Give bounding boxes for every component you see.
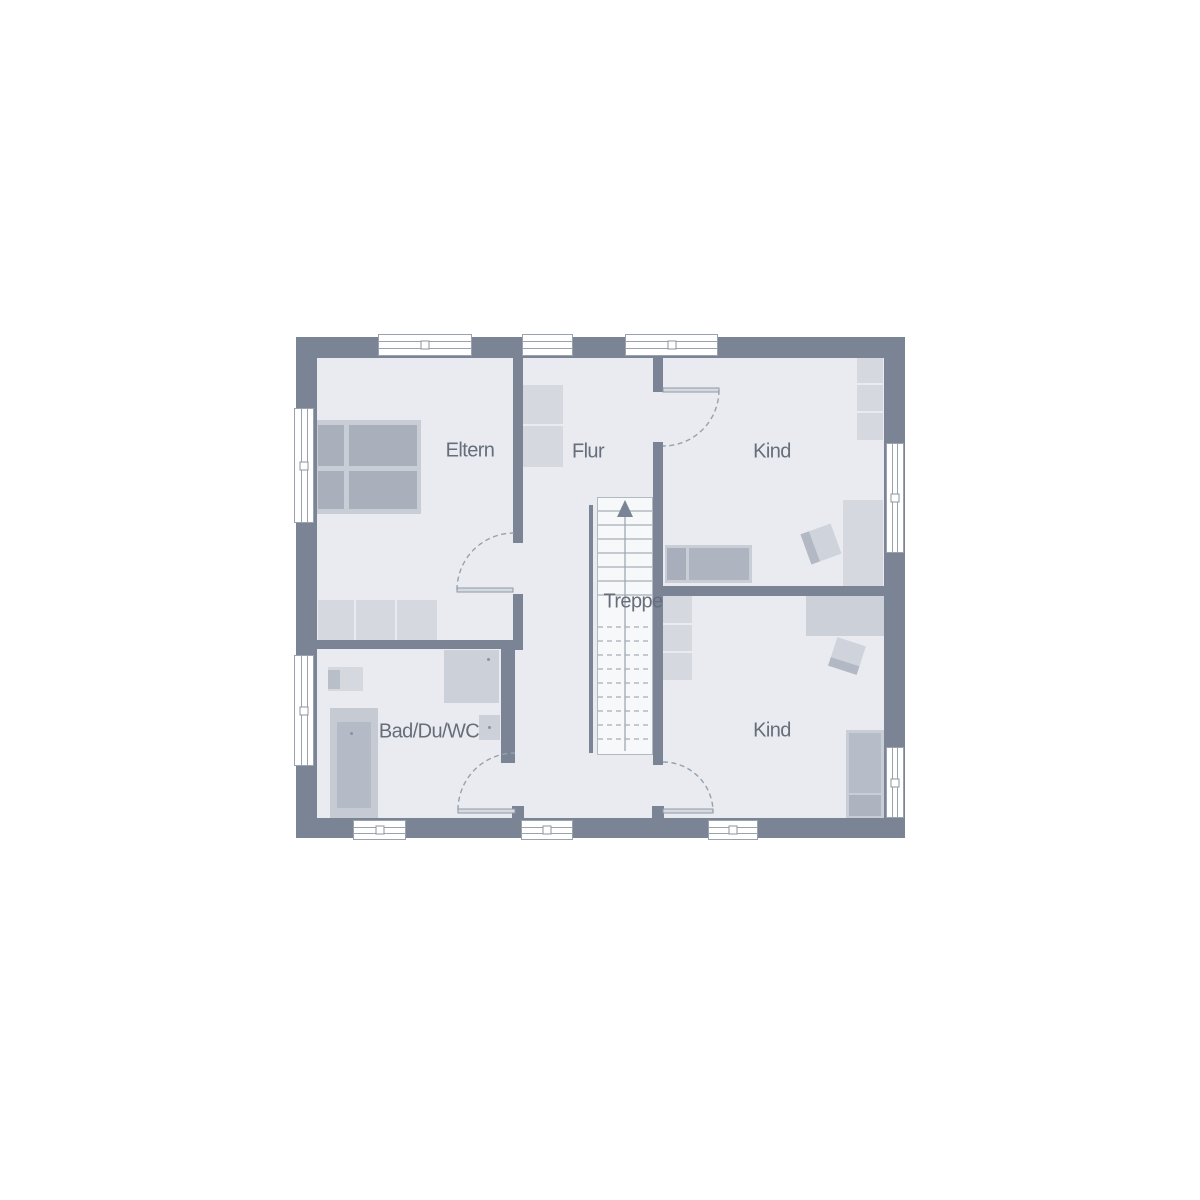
window-top-eltern bbox=[378, 334, 472, 356]
window-top-flur bbox=[522, 334, 573, 356]
desk bbox=[806, 596, 884, 636]
window-handle bbox=[667, 341, 676, 350]
window-handle bbox=[891, 778, 900, 787]
window-handle bbox=[421, 341, 430, 350]
bed-mattress bbox=[689, 548, 749, 580]
window-handle bbox=[375, 826, 384, 835]
room-label-treppe: Treppe bbox=[603, 591, 662, 614]
wall-bad-door-stub bbox=[512, 806, 524, 818]
room-label-bad-du-wc: Bad/Du/WC bbox=[379, 721, 479, 744]
window-top-kind bbox=[625, 334, 718, 356]
wall-bad-east bbox=[501, 649, 515, 763]
window-handle bbox=[543, 826, 552, 835]
wardrobe-segment bbox=[663, 595, 692, 623]
room-label-flur: Flur bbox=[572, 441, 604, 464]
wardrobe-segment bbox=[857, 413, 883, 440]
room-label-eltern: Eltern bbox=[446, 440, 495, 463]
wardrobe-segment bbox=[356, 600, 395, 640]
wall-flur-kind-top bbox=[653, 358, 663, 392]
bed-pillow bbox=[318, 471, 344, 509]
wall-kind-kind bbox=[663, 586, 884, 596]
bed-pillow bbox=[667, 548, 686, 580]
shower bbox=[444, 650, 499, 703]
floor-plan: Eltern Flur Kind Treppe Bad/Du/WC Kind bbox=[0, 0, 1200, 1200]
bed-mattress bbox=[849, 733, 881, 793]
window-handle bbox=[729, 826, 738, 835]
staircase bbox=[597, 497, 653, 755]
washbasin-bowl bbox=[328, 670, 340, 689]
room-label-kind-top: Kind bbox=[753, 441, 791, 464]
room-label-kind-bottom: Kind bbox=[753, 720, 791, 743]
window-handle bbox=[891, 494, 900, 503]
wardrobe-segment bbox=[663, 653, 692, 680]
wardrobe-segment bbox=[318, 600, 354, 640]
sink-drain bbox=[488, 726, 491, 729]
bathtub-basin bbox=[337, 722, 371, 808]
window-right-kind-bottom bbox=[886, 747, 904, 818]
window-left-eltern bbox=[294, 408, 314, 523]
stair-handrail bbox=[589, 505, 593, 753]
window-bottom-bad bbox=[353, 820, 406, 840]
desk bbox=[843, 500, 883, 587]
wardrobe-segment bbox=[397, 600, 437, 640]
wardrobe-segment bbox=[857, 357, 883, 383]
wardrobe-segment bbox=[523, 426, 563, 467]
shower-drain bbox=[487, 658, 490, 661]
bed-mattress bbox=[349, 425, 417, 466]
window-left-bad bbox=[294, 655, 314, 766]
window-bottom-flur bbox=[521, 820, 573, 840]
bed-pillow bbox=[849, 795, 881, 816]
bathtub-drain bbox=[350, 732, 353, 735]
window-right-kind-top bbox=[886, 443, 904, 553]
bed-mattress bbox=[349, 471, 417, 509]
wardrobe-segment bbox=[523, 385, 563, 424]
wardrobe-segment bbox=[663, 625, 692, 651]
wall-eltern-bad bbox=[317, 640, 523, 649]
wardrobe-segment bbox=[857, 385, 883, 411]
wall-eltern-flur bbox=[513, 358, 523, 543]
window-handle bbox=[300, 461, 309, 470]
bed-pillow bbox=[318, 425, 344, 466]
window-bottom-kind bbox=[708, 820, 758, 840]
window-handle bbox=[300, 706, 309, 715]
wall-kind-door-stub bbox=[652, 806, 664, 818]
